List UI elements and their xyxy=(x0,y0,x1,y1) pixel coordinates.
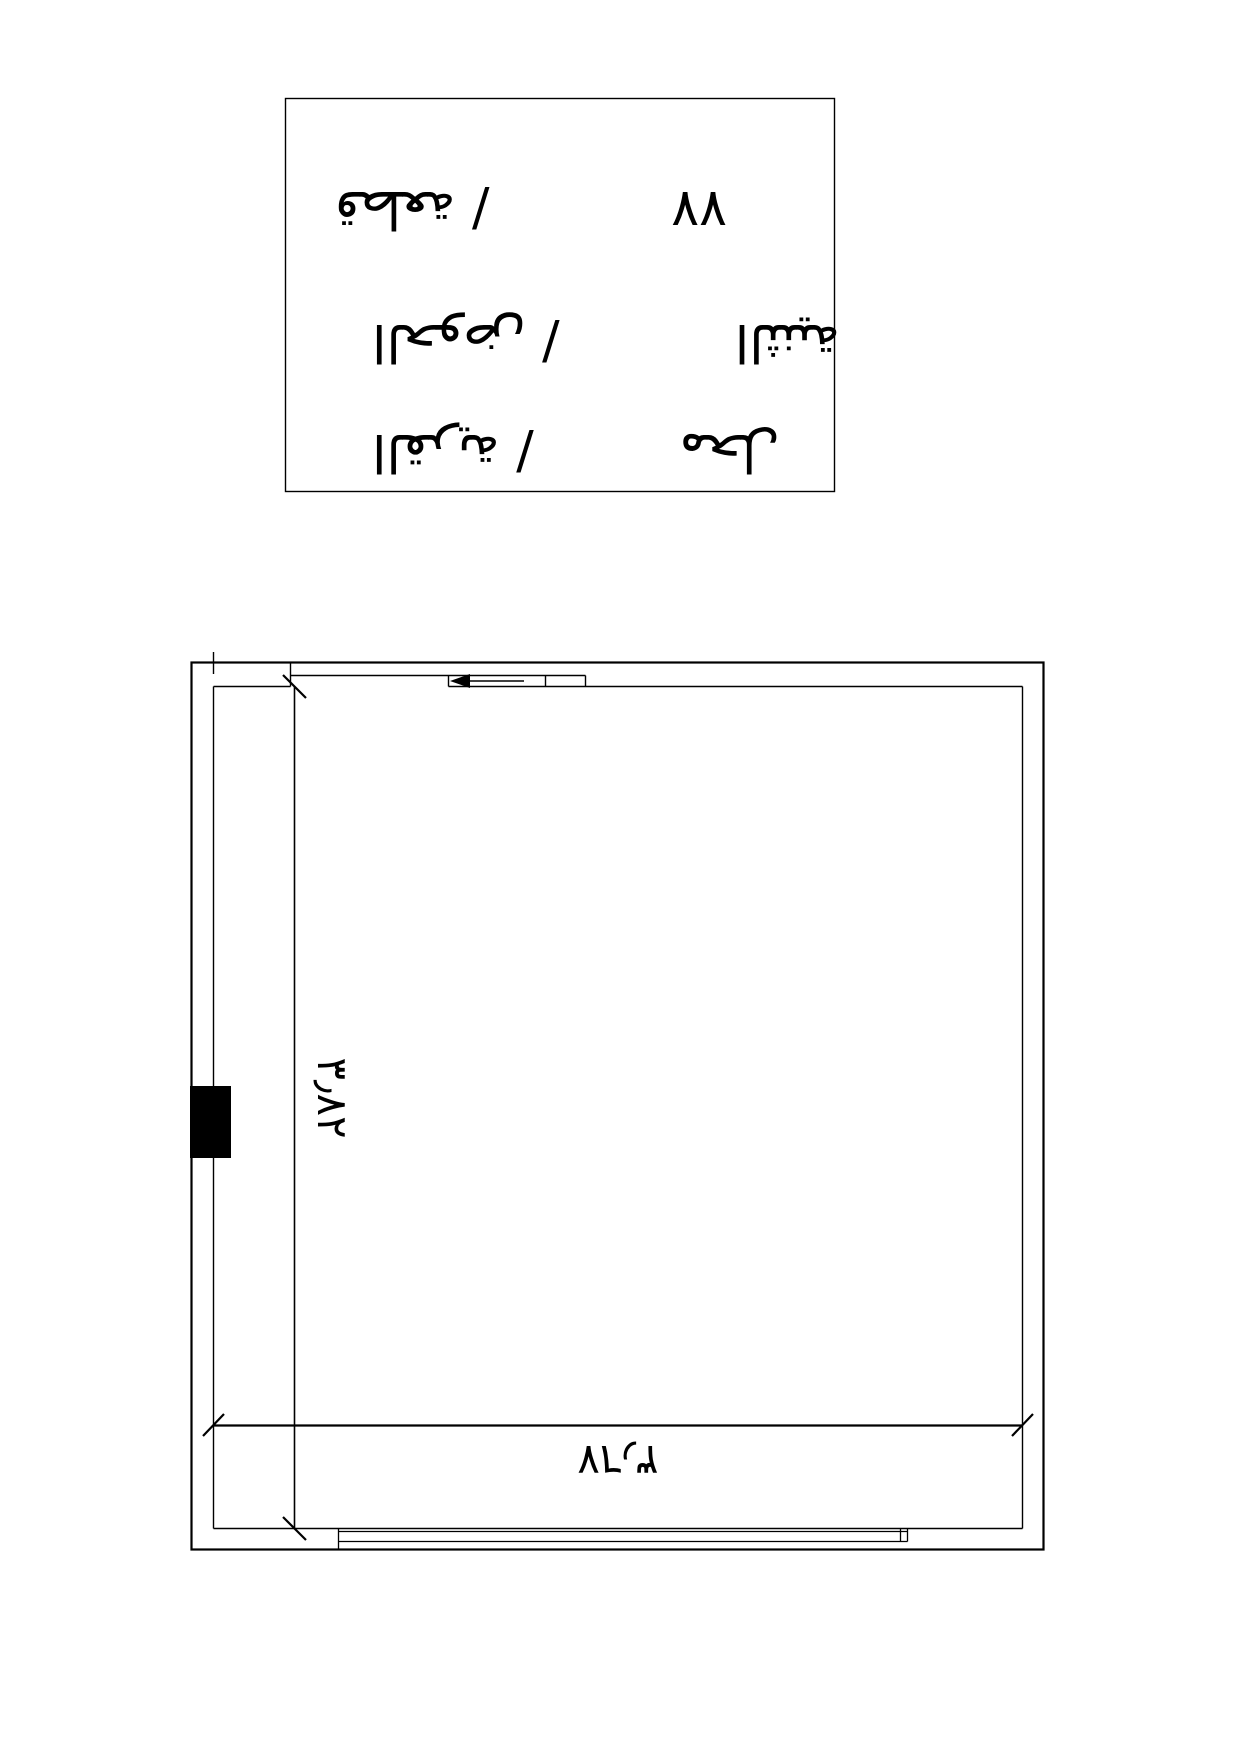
wall-marker xyxy=(190,1086,231,1158)
village-value: محل xyxy=(679,426,780,478)
sliding-door-pocket xyxy=(291,663,586,687)
bottom-window-band xyxy=(339,1528,908,1549)
title-block-row-parcel: قطعة / ٧٧ xyxy=(335,150,727,268)
village-label: القرية / xyxy=(372,426,534,478)
horizontal-dimension-label: ٣٫٦٧ xyxy=(568,1432,668,1488)
drawing-sheet: { "document": { "background": "#ffffff",… xyxy=(0,0,1241,1755)
title-block-row-village: القرية / محل xyxy=(372,402,780,502)
parcel-label: قطعة / xyxy=(335,183,490,235)
vertical-dimension-label: ٣٫٨٢ xyxy=(302,1048,362,1148)
basin-value: الثنية xyxy=(735,316,840,368)
parcel-value: ٧٧ xyxy=(671,183,727,235)
title-block-row-basin: الحوض / الثنية xyxy=(372,292,840,392)
basin-label: الحوض / xyxy=(372,316,560,368)
